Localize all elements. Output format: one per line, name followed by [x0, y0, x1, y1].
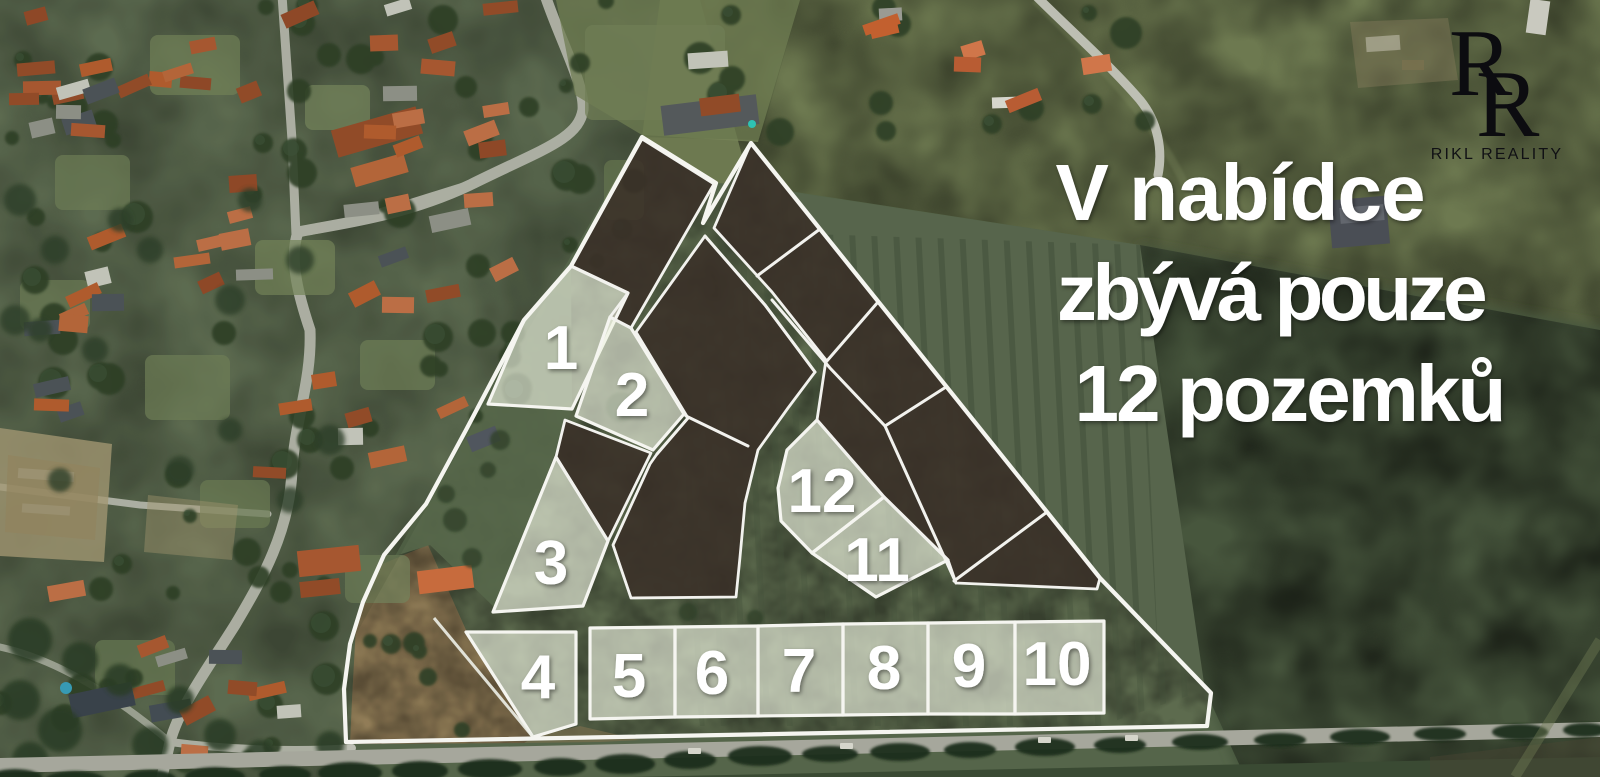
svg-text:RIKL REALITY: RIKL REALITY: [1431, 146, 1564, 163]
svg-text:8: 8: [867, 634, 901, 703]
svg-text:5: 5: [612, 642, 646, 711]
svg-text:10: 10: [1023, 630, 1092, 699]
svg-text:V nabídce: V nabídce: [1056, 148, 1425, 237]
svg-text:3: 3: [534, 529, 568, 598]
svg-text:zbývá pouze: zbývá pouze: [1057, 248, 1485, 337]
svg-text:4: 4: [521, 643, 556, 712]
svg-text:9: 9: [952, 632, 986, 701]
svg-text:12 pozemků: 12 pozemků: [1075, 349, 1504, 438]
svg-text:11: 11: [844, 526, 910, 595]
svg-text:R: R: [1476, 51, 1540, 157]
svg-text:7: 7: [782, 637, 816, 706]
svg-text:6: 6: [695, 639, 729, 708]
svg-text:12: 12: [788, 457, 857, 526]
svg-text:2: 2: [615, 361, 649, 430]
svg-text:1: 1: [544, 314, 578, 383]
